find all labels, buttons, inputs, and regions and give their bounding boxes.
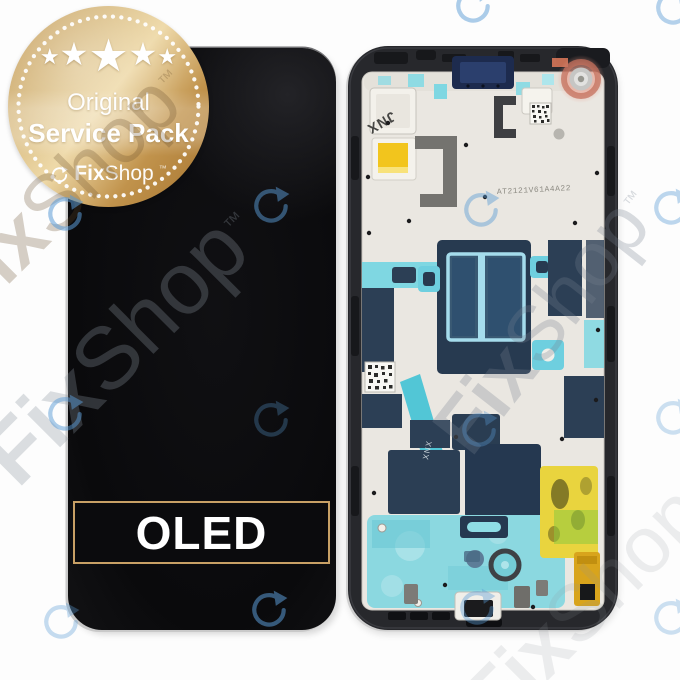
- refresh-arrow-watermark-icon: [452, 0, 494, 26]
- frame-back-panel: JNX: [348, 46, 618, 630]
- adhesive-patch: [434, 84, 447, 99]
- oled-type-label: OLED: [73, 501, 330, 564]
- badge-brand-logo: FixShop ™: [50, 162, 166, 186]
- qr-code-sticker-top: [530, 103, 551, 124]
- screw-boss: [554, 129, 565, 140]
- brand-bold: Fix: [74, 162, 104, 185]
- flex-connector: [452, 56, 514, 89]
- product-photo: OLED: [0, 0, 680, 680]
- refresh-arrow-watermark-icon: [652, 396, 680, 438]
- badge-stars: ★ ★ ★ ★ ★: [40, 33, 177, 78]
- service-pack-badge: ★ ★ ★ ★ ★ Original Service Pack FixShop …: [8, 6, 209, 207]
- graphite-pad: [548, 240, 582, 316]
- adhesive-clip: [418, 266, 440, 292]
- charging-port: [455, 592, 501, 620]
- adhesive-sheen: [381, 575, 403, 597]
- graphite-pad: [564, 376, 604, 438]
- star-icon: ★: [40, 46, 60, 68]
- refresh-arrow-watermark-icon: [652, 0, 680, 28]
- oled-type-label-text: OLED: [136, 506, 268, 560]
- bracket-gray: [514, 586, 530, 608]
- trademark-symbol: ™: [159, 164, 167, 173]
- camera-opening-ring: [557, 55, 605, 103]
- graphite-pad: [586, 240, 604, 318]
- graphite-pad: [362, 288, 394, 372]
- star-icon: ★: [60, 38, 89, 70]
- adhesive-patch: [408, 74, 424, 87]
- star-icon: ★: [129, 38, 158, 70]
- adhesive-strip: [584, 320, 604, 368]
- refresh-arrow-icon: [50, 165, 69, 184]
- microphone-bracket: [464, 551, 480, 562]
- graphite-pad: [465, 444, 541, 518]
- graphite-tab: [392, 267, 416, 283]
- badge-subtitle: Service Pack: [28, 118, 188, 149]
- star-icon: ★: [157, 46, 177, 68]
- frame-back-panel-graphic: JNX: [348, 46, 618, 630]
- adhesive-clip: [532, 340, 564, 370]
- bracket-gray: [536, 580, 548, 596]
- watermark-brand-bold: Fix: [0, 190, 65, 335]
- refresh-arrow-watermark-icon: [650, 596, 680, 638]
- adhesive-pill: [467, 522, 501, 532]
- bracket-gray: [404, 584, 418, 604]
- speaker-ring: [491, 551, 519, 579]
- watermark-trademark: ™: [619, 186, 645, 212]
- star-icon: ★: [88, 33, 128, 78]
- badge-title: Original: [67, 89, 150, 117]
- yellow-sticker: [372, 138, 416, 180]
- refresh-arrow-watermark-icon: [650, 186, 680, 228]
- brand-light: Shop: [105, 162, 154, 185]
- battery-adhesive-block: [437, 240, 531, 374]
- adhesive-patch: [542, 74, 554, 85]
- adhesive-patch: [378, 76, 391, 85]
- graphite-pad: [362, 394, 402, 428]
- qr-code-sticker-mid: [365, 362, 395, 392]
